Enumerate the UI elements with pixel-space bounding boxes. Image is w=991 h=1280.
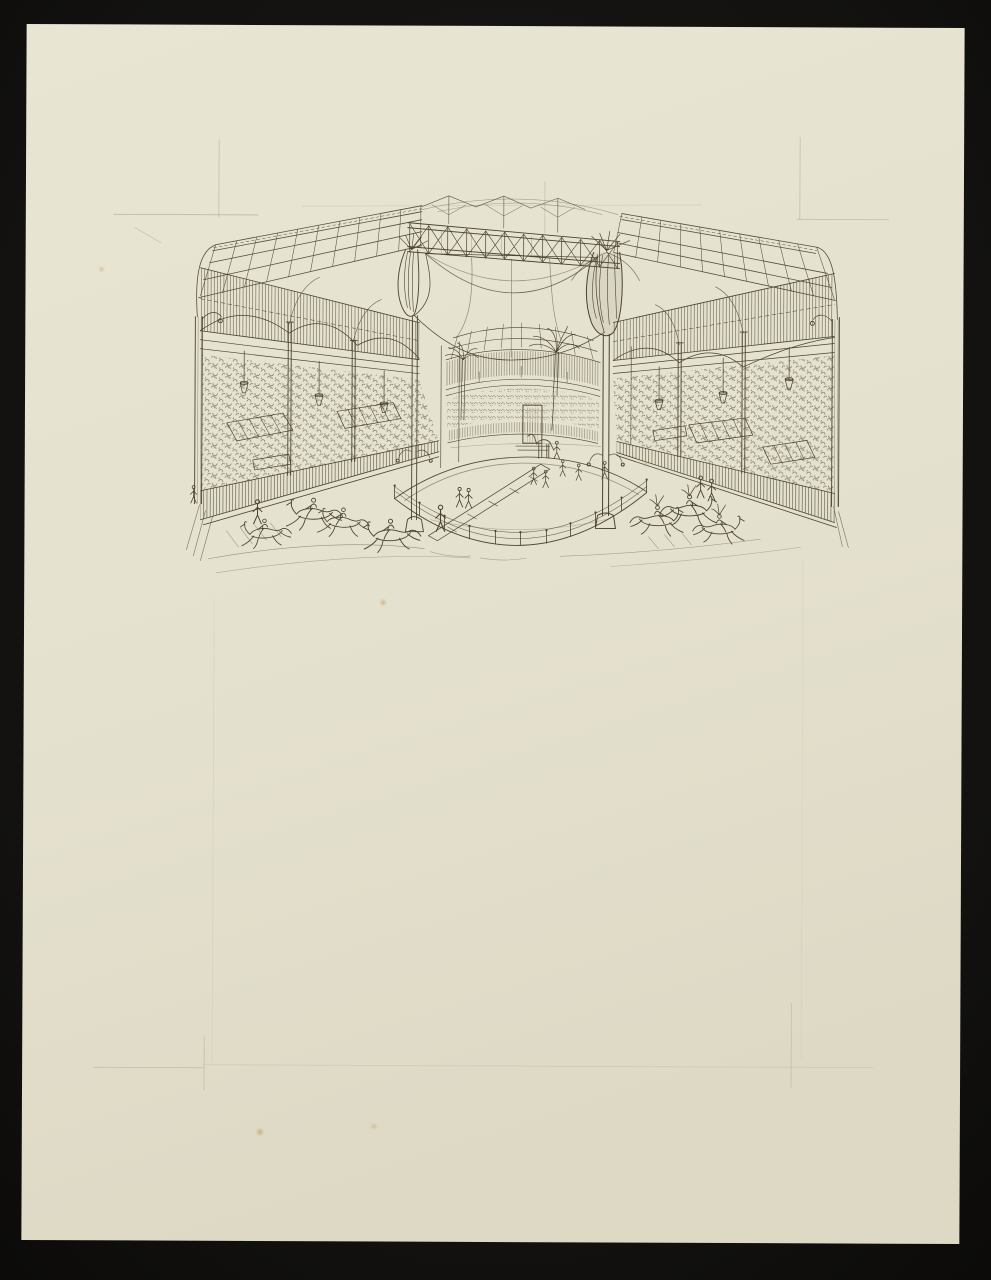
scan-background: Pen-and-ink sketch on cream paper, mount…	[0, 0, 991, 1280]
artwork-scan	[0, 0, 991, 1280]
paper	[21, 24, 964, 1244]
paper-sheet	[21, 24, 964, 1244]
